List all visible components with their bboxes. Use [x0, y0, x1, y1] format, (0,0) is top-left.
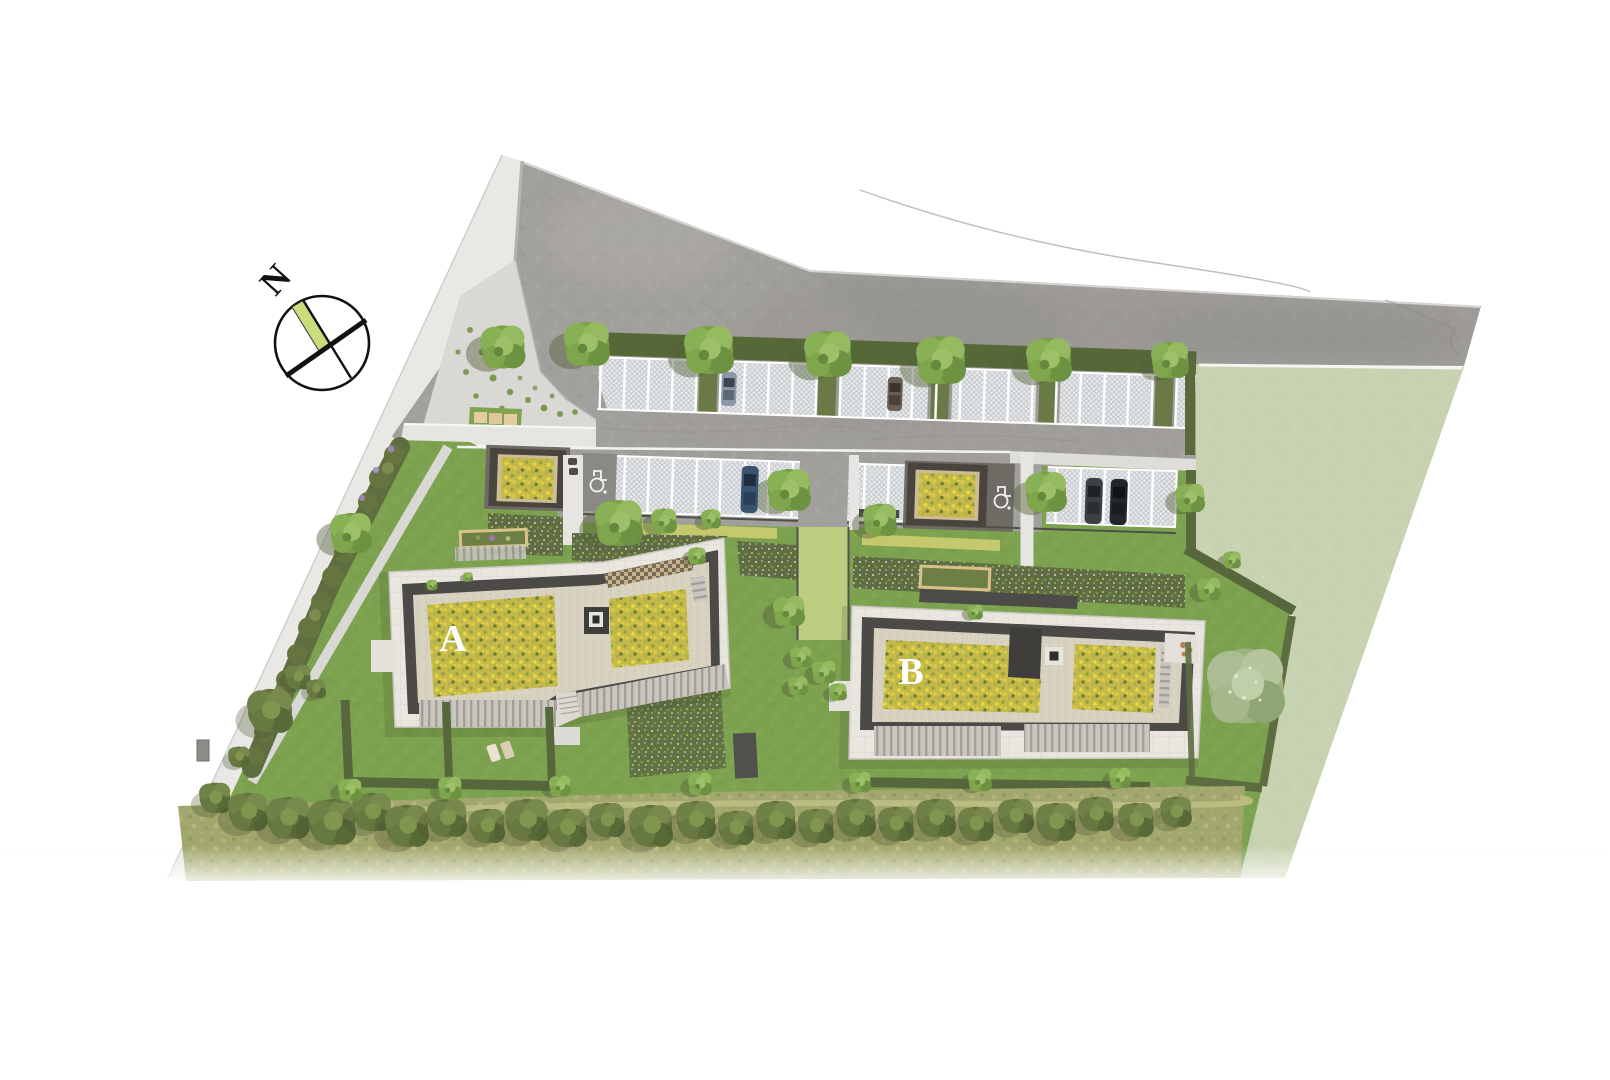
svg-text:B: B	[898, 651, 923, 693]
svg-text:A: A	[439, 618, 467, 660]
